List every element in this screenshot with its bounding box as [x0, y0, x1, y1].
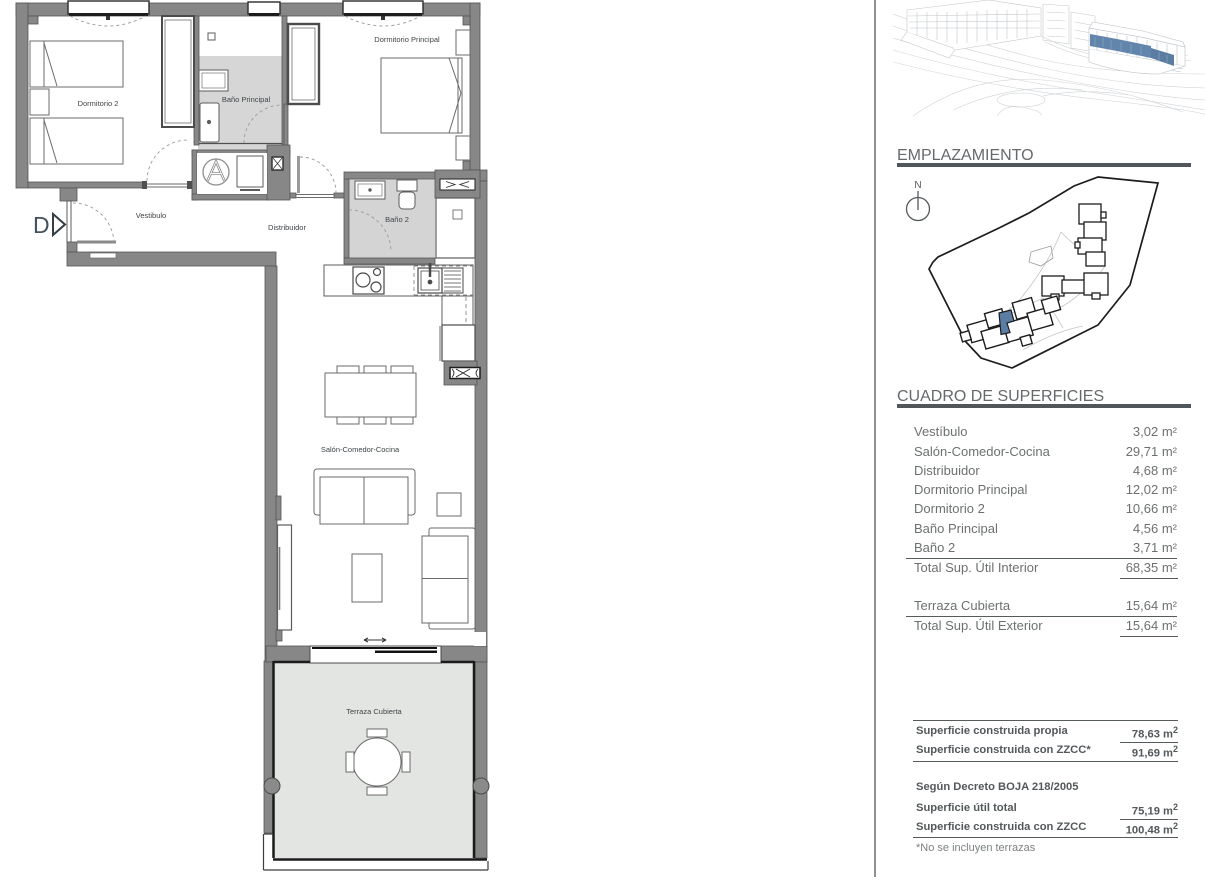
svg-text:Distribuidor: Distribuidor	[268, 223, 306, 232]
svg-text:Dormitorio 2: Dormitorio 2	[78, 99, 119, 108]
svg-text:Vestibulo: Vestibulo	[136, 211, 166, 220]
svg-text:Salón-Comedor-Cocina: Salón-Comedor-Cocina	[321, 445, 400, 454]
svg-text:N: N	[914, 180, 921, 191]
svg-text:D: D	[33, 212, 50, 238]
svg-text:Baño Principal: Baño Principal	[222, 95, 271, 104]
svg-text:Baño 2: Baño 2	[385, 215, 409, 224]
svg-text:Dormitorio Principal: Dormitorio Principal	[374, 35, 440, 44]
svg-text:Terraza Cubierta: Terraza Cubierta	[346, 707, 402, 716]
